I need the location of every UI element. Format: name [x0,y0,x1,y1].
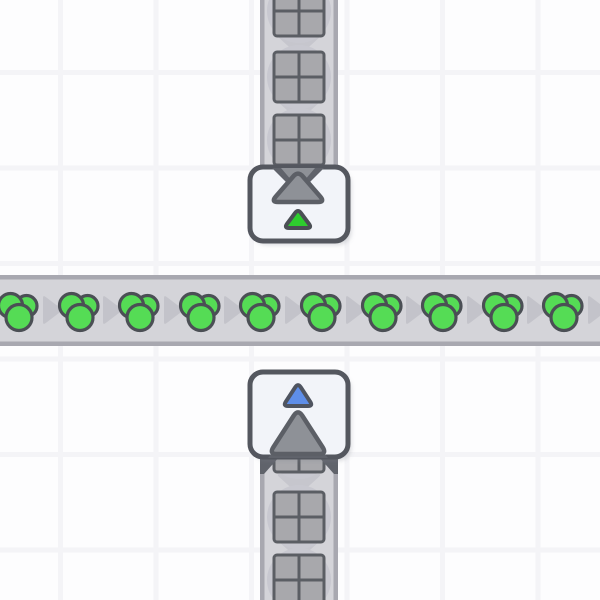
game-world[interactable] [0,0,600,600]
item-gray-crate[interactable] [274,0,324,36]
grid-line-horizontal [0,357,600,362]
green-circle [491,305,517,331]
belt-edge [0,342,600,347]
conveyor-belt-vertical-top[interactable] [260,0,338,172]
game-viewport[interactable] [0,0,600,600]
belt-edge [0,275,600,280]
item-gray-crate[interactable] [274,555,324,600]
green-circle [248,305,274,331]
underground-belt-entrance[interactable] [250,167,352,245]
green-circle [6,305,32,331]
green-circle [309,305,335,331]
green-circle [188,305,214,331]
item-gray-crate[interactable] [274,492,324,542]
belt-edge [260,0,265,170]
green-circle [370,305,396,331]
green-circle [67,305,93,331]
belt-edge [334,0,339,170]
green-circle [430,305,456,331]
item-gray-crate[interactable] [274,52,324,102]
underground-belt-exit[interactable] [250,372,352,474]
green-circle [551,305,577,331]
green-circle [127,305,153,331]
grid-line-horizontal [0,261,600,266]
item-gray-crate[interactable] [274,115,324,165]
conveyor-belt-horizontal[interactable] [0,275,600,346]
